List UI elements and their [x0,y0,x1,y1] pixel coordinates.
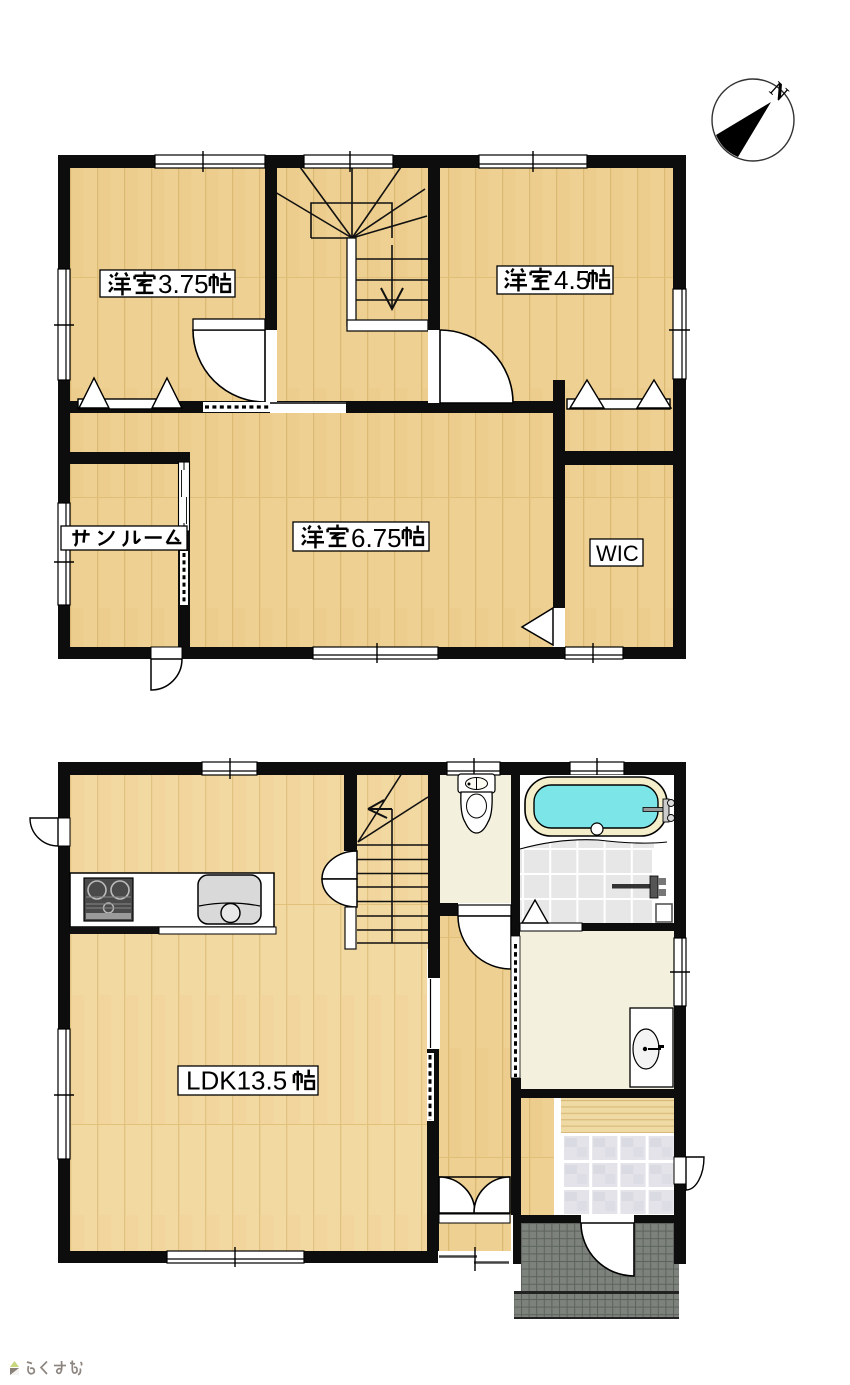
svg-text:6.75: 6.75 [351,523,402,553]
svg-text:WIC: WIC [596,541,639,566]
svg-text:4.5: 4.5 [554,265,590,295]
svg-text:LDK13.5: LDK13.5 [186,1066,287,1096]
svg-text:3.75: 3.75 [158,269,209,299]
